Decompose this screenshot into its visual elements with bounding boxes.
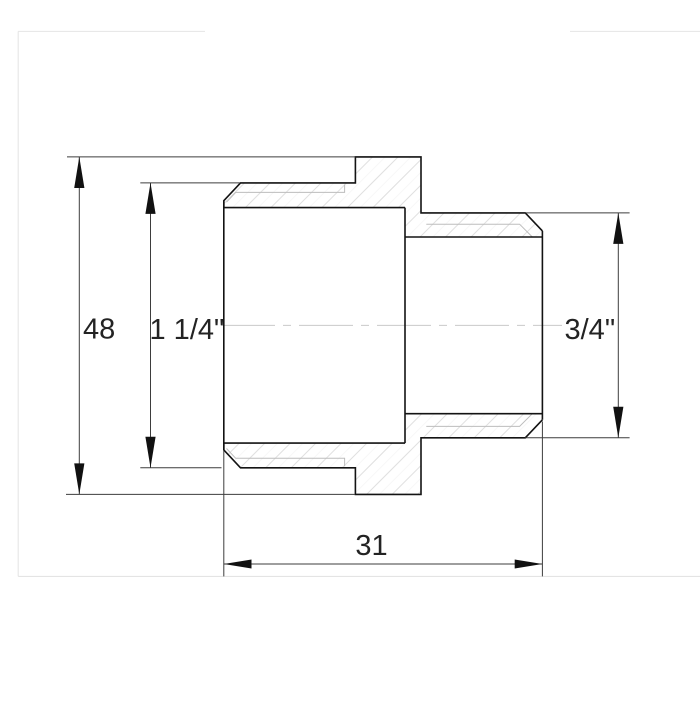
svg-text:31: 31 <box>355 530 387 562</box>
svg-text:3/4": 3/4" <box>565 314 616 346</box>
svg-text:1 1/4": 1 1/4" <box>150 314 225 346</box>
svg-text:48: 48 <box>83 314 115 346</box>
